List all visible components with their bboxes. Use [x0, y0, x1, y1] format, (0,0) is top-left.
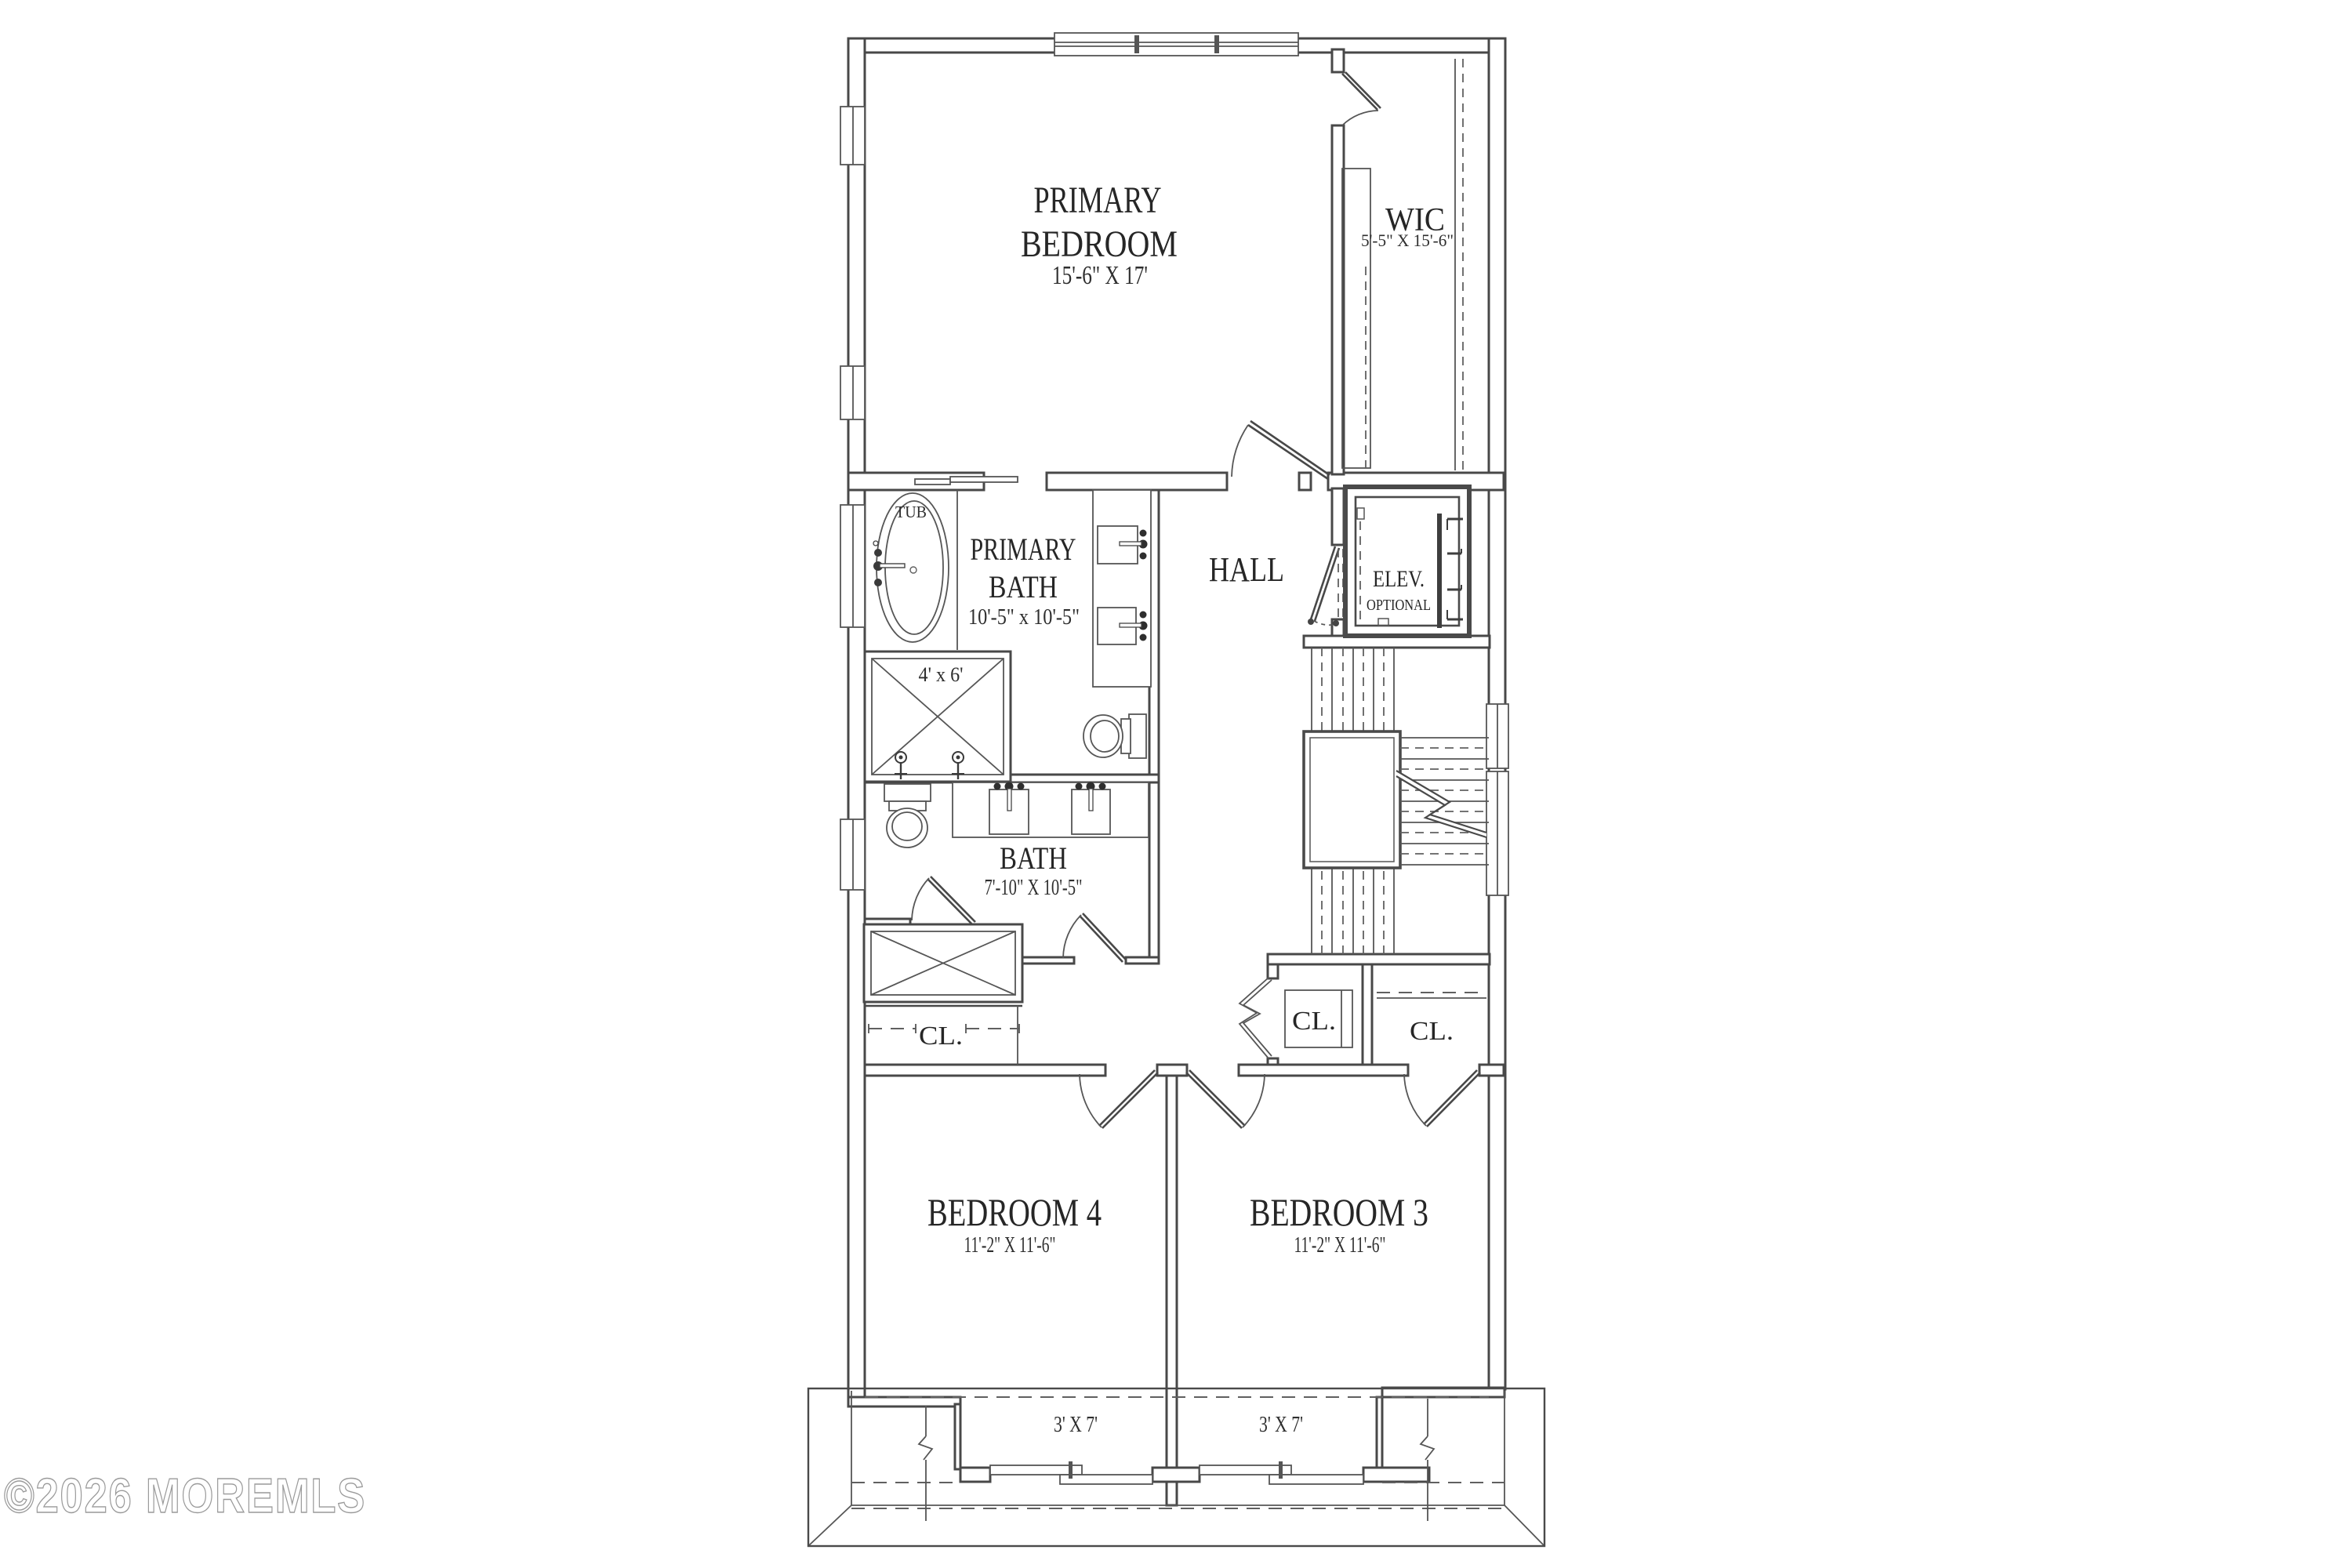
- svg-text:HALL: HALL: [1209, 550, 1284, 589]
- svg-text:CL.: CL.: [1410, 1017, 1454, 1046]
- svg-text:ELEV.: ELEV.: [1373, 566, 1425, 592]
- svg-text:©2026 MOREMLS: ©2026 MOREMLS: [4, 1469, 366, 1523]
- svg-text:7'-10" X 10'-5": 7'-10" X 10'-5": [985, 876, 1083, 900]
- svg-text:TUB: TUB: [895, 503, 927, 521]
- svg-text:OPTIONAL: OPTIONAL: [1367, 597, 1431, 614]
- svg-text:15'-6" X 17': 15'-6" X 17': [1052, 261, 1148, 290]
- svg-text:BATH: BATH: [1000, 840, 1067, 876]
- svg-text:11'-2" X 11'-6": 11'-2" X 11'-6": [964, 1233, 1056, 1258]
- svg-text:PRIMARY: PRIMARY: [1034, 180, 1162, 221]
- svg-text:3' X 7': 3' X 7': [1259, 1413, 1303, 1437]
- svg-text:3' X 7': 3' X 7': [1054, 1413, 1098, 1437]
- svg-text:BEDROOM: BEDROOM: [1021, 223, 1178, 265]
- svg-text:4' x 6': 4' x 6': [919, 663, 964, 686]
- svg-text:5'-5" X 15'-6": 5'-5" X 15'-6": [1361, 230, 1454, 250]
- svg-text:CL.: CL.: [1292, 1007, 1336, 1036]
- svg-text:BEDROOM 3: BEDROOM 3: [1250, 1190, 1428, 1234]
- svg-text:10'-5" x 10'-5": 10'-5" x 10'-5": [968, 605, 1080, 630]
- svg-text:CL.: CL.: [919, 1022, 963, 1051]
- svg-text:BEDROOM 4: BEDROOM 4: [927, 1190, 1102, 1234]
- svg-text:PRIMARY: PRIMARY: [971, 532, 1076, 567]
- svg-text:BATH: BATH: [989, 569, 1058, 604]
- svg-text:11'-2" X 11'-6": 11'-2" X 11'-6": [1294, 1233, 1386, 1258]
